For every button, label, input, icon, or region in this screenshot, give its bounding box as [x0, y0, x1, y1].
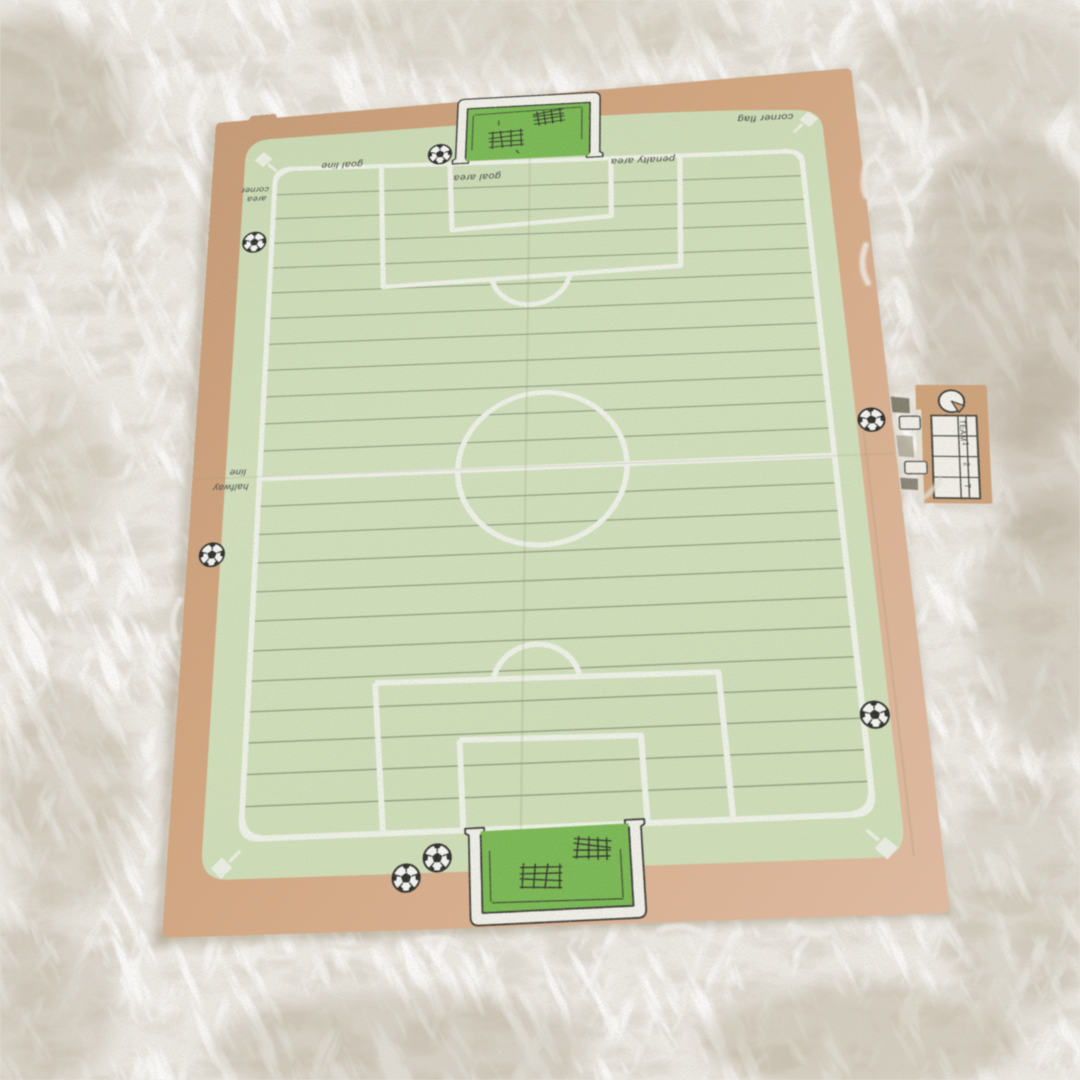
svg-text:halfway: halfway: [211, 482, 248, 494]
svg-text:TEAM: TEAM: [957, 420, 967, 442]
svg-text:area: area: [246, 194, 267, 204]
svg-text:T: T: [962, 484, 970, 489]
svg-text:corner: corner: [241, 185, 270, 195]
svg-text:line: line: [229, 467, 247, 478]
svg-text:goal line: goal line: [321, 159, 364, 171]
